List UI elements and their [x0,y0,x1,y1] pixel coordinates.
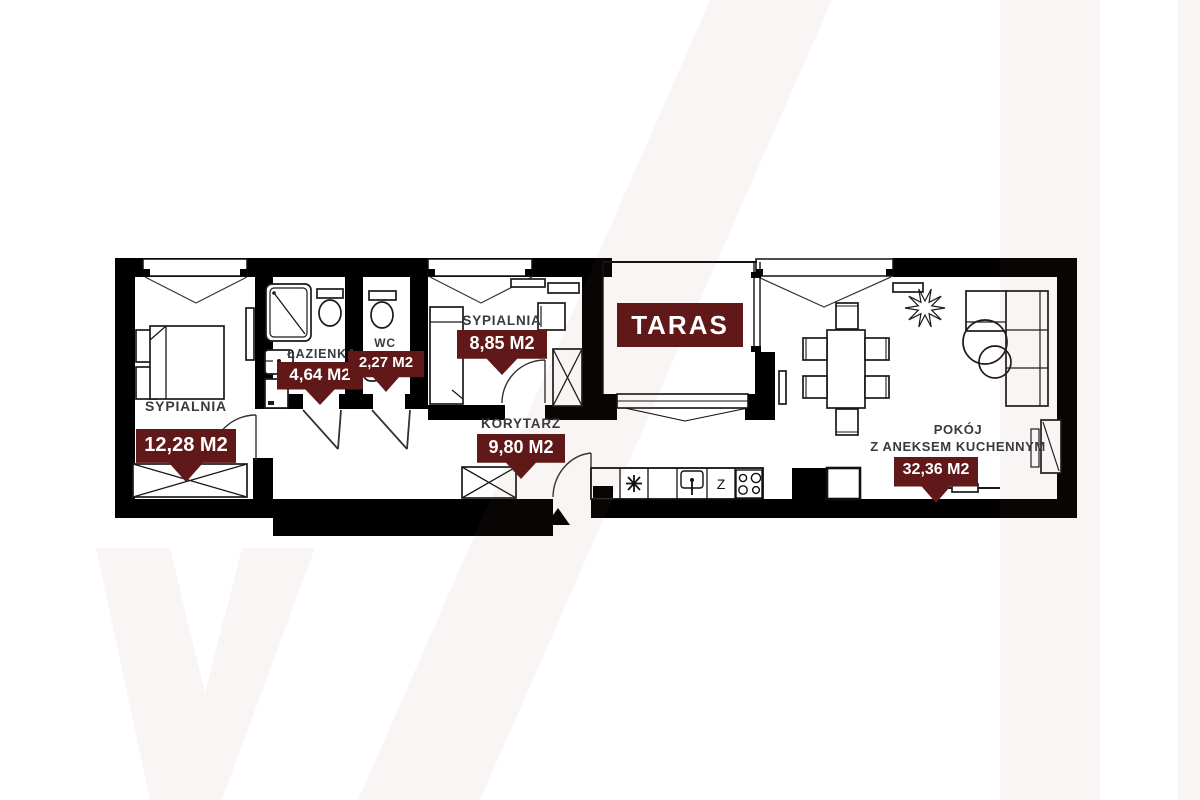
desk [548,283,579,293]
room-label-wc: WC [355,336,415,350]
chair [836,303,858,329]
dining-table [827,330,865,408]
radiator [779,371,786,404]
terrace-label-banner: TARAS [617,303,743,347]
floorplan-canvas: Z [0,0,1200,800]
toilet [369,291,396,300]
cabinet [827,468,860,499]
toilet [317,289,343,298]
double-bed [150,326,224,399]
room-label-bedroom2: SYPIALNIA [442,313,562,328]
freezer-icon [626,475,642,492]
radiator [246,308,254,360]
chair [803,338,827,360]
room-label-bedroom1: SYPIALNIA [116,398,256,414]
hob-icon [736,470,762,498]
plant-icon [905,289,945,327]
room-label-living: POKÓJ Z ANEKSEM KUCHENNYM [838,421,1078,455]
room-label-corridor: KORYTARZ [451,416,591,431]
chair [865,338,889,360]
shelf [511,279,545,287]
chair [803,376,827,398]
chair [865,376,889,398]
dishwasher-label: Z [717,476,726,492]
